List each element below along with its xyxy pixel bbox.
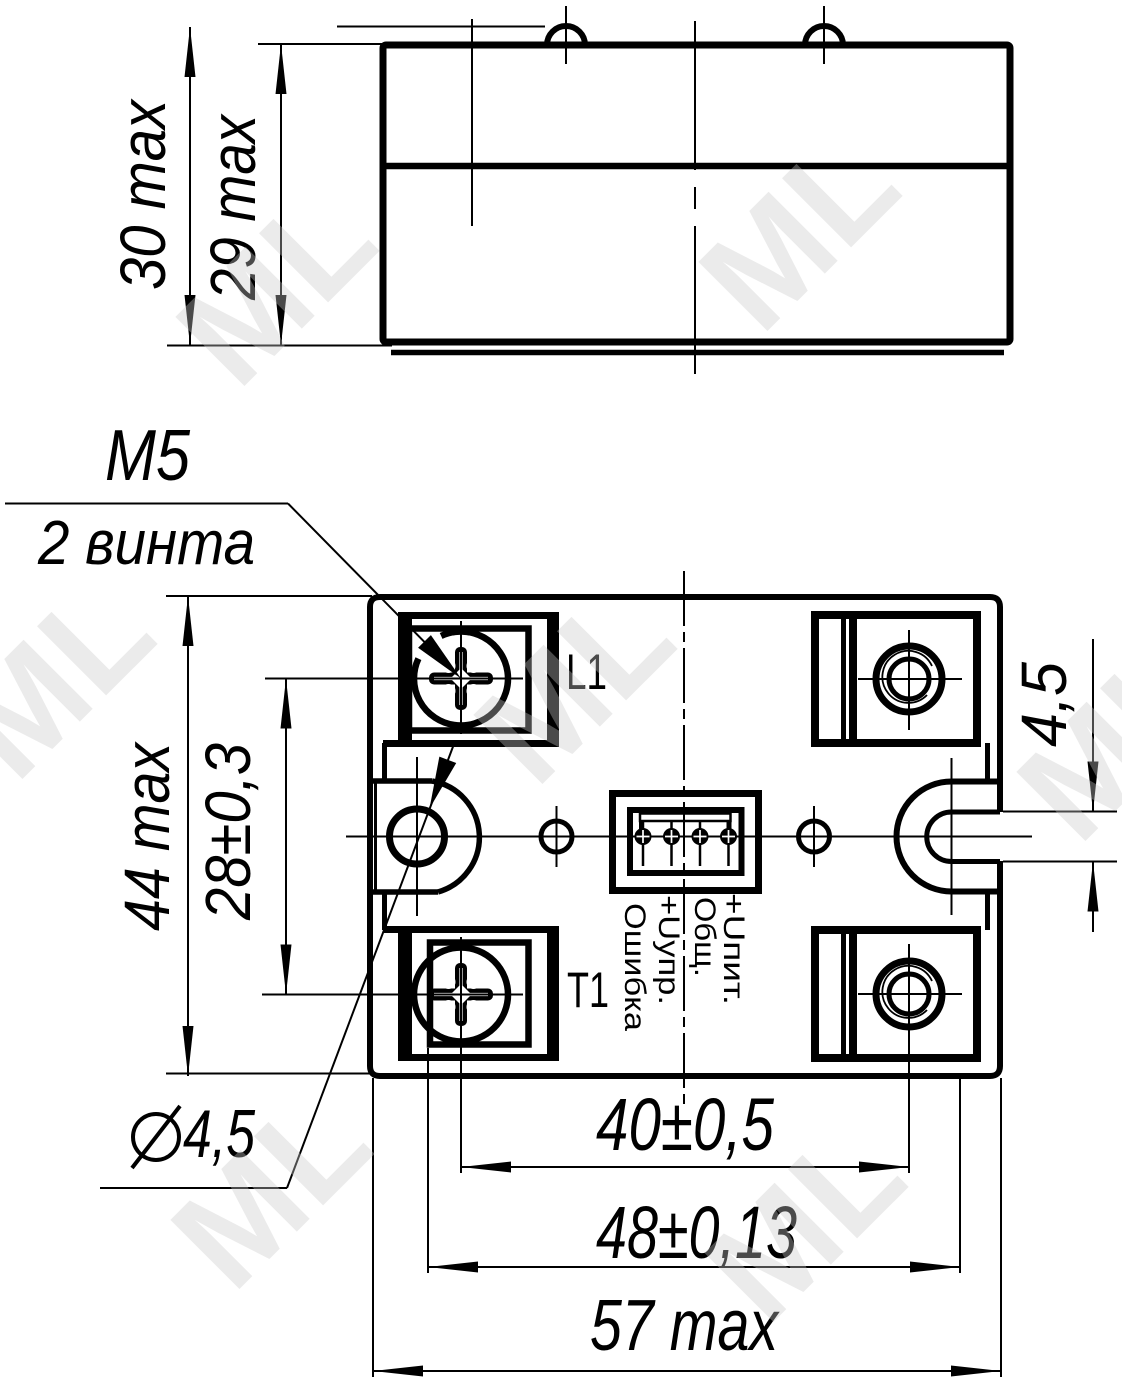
svg-text:30 max: 30 max — [107, 98, 179, 290]
svg-text:28±0,3: 28±0,3 — [192, 743, 264, 921]
svg-text:Общ.: Общ. — [688, 897, 721, 977]
svg-text:T1: T1 — [567, 962, 609, 1018]
svg-text:40±0,5: 40±0,5 — [596, 1083, 775, 1166]
svg-text:M5: M5 — [105, 416, 191, 496]
svg-text:+Uупр.: +Uупр. — [652, 895, 685, 1005]
svg-text:+Uпит.: +Uпит. — [717, 893, 750, 1005]
svg-text:44 max: 44 max — [111, 741, 183, 931]
svg-text:Ошибка: Ошибка — [618, 903, 651, 1031]
